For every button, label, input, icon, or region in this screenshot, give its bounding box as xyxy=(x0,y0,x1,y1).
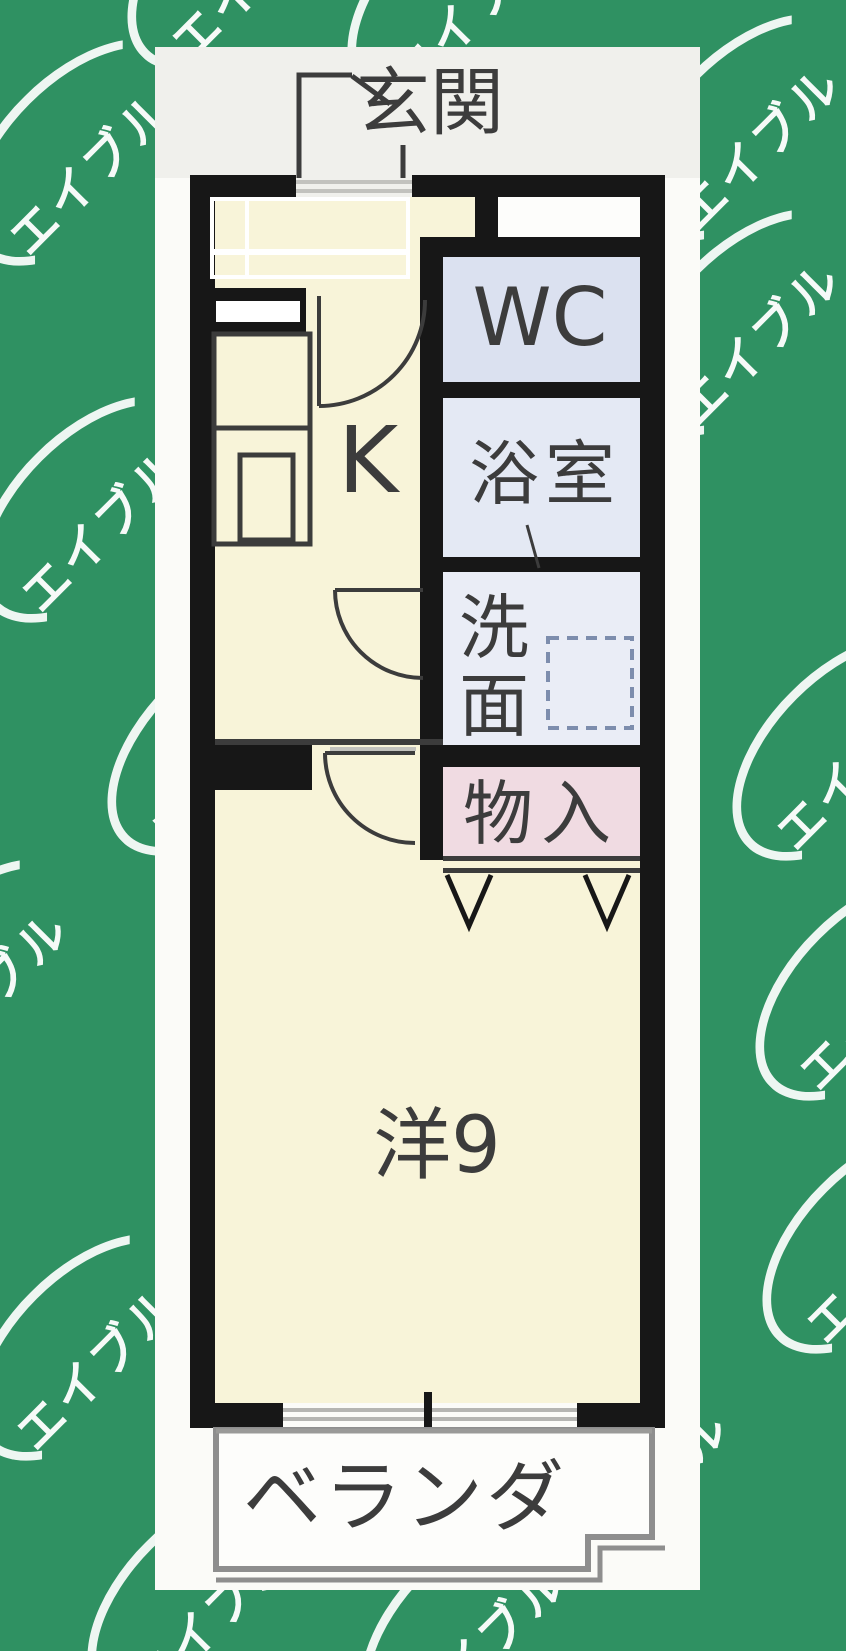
label-kitchen: K xyxy=(338,407,401,514)
watermark: エイブル xyxy=(757,667,846,864)
wall-kitchen-mainroom-line xyxy=(215,739,443,745)
watermark-swoosh-arc xyxy=(692,593,846,901)
label-balcony: ベランダ xyxy=(243,1453,567,1543)
wall-top xyxy=(190,175,665,197)
watermark-swoosh-arc xyxy=(715,833,846,1141)
kitchen-wall-hatch-slot xyxy=(216,301,300,322)
label-wc: WC xyxy=(473,271,608,364)
label-storage: 物入 xyxy=(463,773,619,855)
label-main-room: 洋9 xyxy=(373,1101,501,1191)
watermark-text: エイブル xyxy=(780,907,846,1104)
wall-wc-bath xyxy=(443,382,665,398)
mainroom-door-threshold xyxy=(330,747,416,751)
floorplan-drawing: 玄関 WC K 浴室 洗 面 物入 洋9 ベランダ xyxy=(155,47,700,1590)
watermark: エイブル xyxy=(0,892,83,1089)
entrance-threshold-line xyxy=(296,180,412,184)
watermark-text: エイブル xyxy=(787,1160,846,1357)
label-washroom-bottom: 面 xyxy=(459,665,529,747)
watermark-text: エイブル xyxy=(0,892,83,1089)
wall-right xyxy=(640,175,665,1428)
wall-washroom-storage xyxy=(420,745,665,767)
watermark-swoosh-arc xyxy=(0,818,130,1126)
wall-left xyxy=(190,175,215,1428)
watermark: エイブル xyxy=(780,907,846,1104)
entrance-opening xyxy=(296,175,412,197)
watermark-swoosh-arc xyxy=(722,1086,846,1394)
wall-bath-washroom xyxy=(443,557,665,572)
label-bath: 浴室 xyxy=(469,433,621,515)
watermark: エイブル xyxy=(787,1160,846,1357)
wall-kitchen-mainroom-stub xyxy=(215,745,312,790)
watermark-text: エイブル xyxy=(757,667,846,864)
wall-above-wc xyxy=(420,237,665,257)
area-pipe-space xyxy=(475,197,640,237)
room-entrance-extension xyxy=(443,197,475,237)
floorplan-image: 玄関 WC K 浴室 洗 面 物入 洋9 ベランダ xyxy=(155,47,700,1590)
closet-front-line xyxy=(443,856,640,861)
screenshot-root: エイブルエイブルエイブルエイブルエイブルエイブルエイブルエイブルエイブルエイブル… xyxy=(0,0,846,1651)
closet-front-line xyxy=(443,868,640,873)
entrance-threshold-line xyxy=(296,189,412,193)
label-entrance: 玄関 xyxy=(356,60,504,146)
label-washroom-top: 洗 xyxy=(459,587,529,669)
